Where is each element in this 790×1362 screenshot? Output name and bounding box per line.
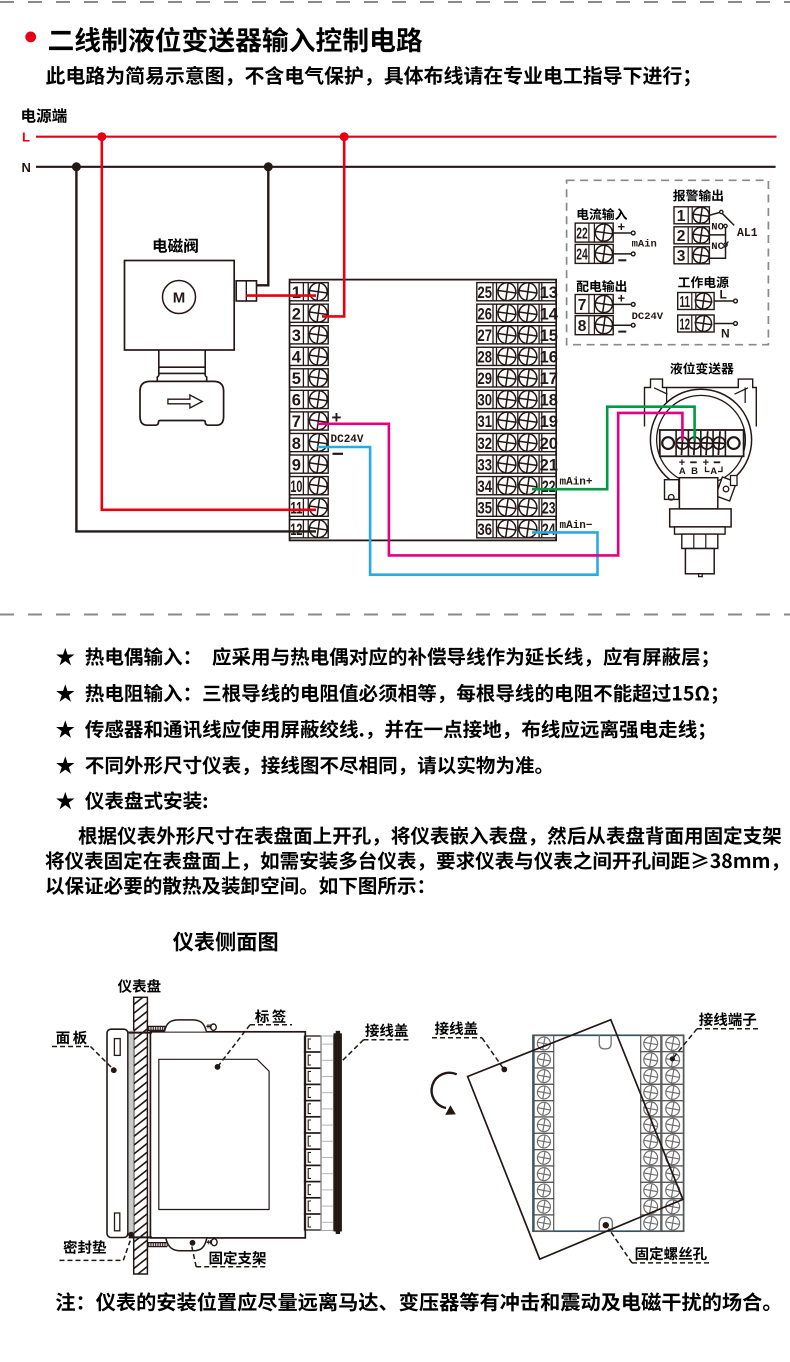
svg-text:N: N [22,160,31,175]
svg-text:N: N [721,327,730,341]
svg-text:27: 27 [478,327,493,345]
svg-text:6: 6 [292,392,301,410]
svg-text:13: 13 [540,284,558,302]
svg-text:NC: NC [711,241,724,253]
svg-text:8: 8 [292,435,301,453]
svg-text:A: A [710,466,717,477]
svg-text:25: 25 [478,284,493,302]
svg-text:19: 19 [540,413,558,431]
svg-text:32: 32 [478,435,493,453]
svg-text:33: 33 [478,456,493,474]
svg-text:8: 8 [578,318,587,335]
svg-text:24: 24 [542,521,556,539]
svg-text:9: 9 [292,456,301,474]
svg-text:15: 15 [540,327,558,345]
svg-text:L: L [22,130,30,145]
svg-text:16: 16 [540,349,558,367]
svg-text:DC24V: DC24V [632,311,664,323]
svg-text:7: 7 [578,297,587,314]
svg-text:12: 12 [290,521,302,539]
svg-text:11: 11 [290,499,302,517]
svg-text:7: 7 [292,413,301,431]
svg-text:23: 23 [542,499,556,517]
svg-text:17: 17 [540,370,558,388]
svg-text:35: 35 [478,499,493,517]
svg-text:M: M [173,289,186,306]
svg-text:31: 31 [478,413,493,431]
svg-text:3: 3 [677,248,686,265]
svg-text:22: 22 [542,478,556,496]
svg-text:1: 1 [292,284,301,302]
svg-text:20: 20 [540,435,558,453]
svg-text:+: + [618,219,626,234]
svg-text:4: 4 [292,349,302,367]
svg-text:B: B [691,466,698,477]
svg-text:18: 18 [540,392,558,410]
svg-text:28: 28 [478,349,493,367]
svg-text:mAin−: mAin− [560,520,593,532]
svg-text:DC24V: DC24V [331,434,364,446]
svg-text:A: A [679,466,686,477]
svg-text:AL1: AL1 [737,227,758,240]
svg-text:36: 36 [478,521,493,539]
svg-text:26: 26 [478,305,493,323]
svg-text:mAin: mAin [632,238,657,250]
svg-text:2: 2 [677,228,686,245]
svg-text:21: 21 [540,456,558,474]
svg-text:34: 34 [478,478,493,496]
svg-text:mAin+: mAin+ [560,476,593,488]
svg-text:5: 5 [292,370,301,388]
svg-text:11: 11 [680,294,691,311]
svg-text:L: L [720,288,727,302]
svg-text:22: 22 [576,225,588,242]
svg-text:2: 2 [292,305,301,323]
svg-text:12: 12 [680,316,691,333]
svg-text:30: 30 [478,392,493,410]
svg-text:3: 3 [292,327,301,345]
svg-text:29: 29 [478,370,493,388]
svg-text:10: 10 [290,478,302,496]
svg-text:1: 1 [677,208,686,225]
svg-text:24: 24 [576,247,588,264]
svg-text:+: + [618,290,626,305]
svg-text:14: 14 [540,305,559,323]
svg-text:NO: NO [711,222,724,234]
